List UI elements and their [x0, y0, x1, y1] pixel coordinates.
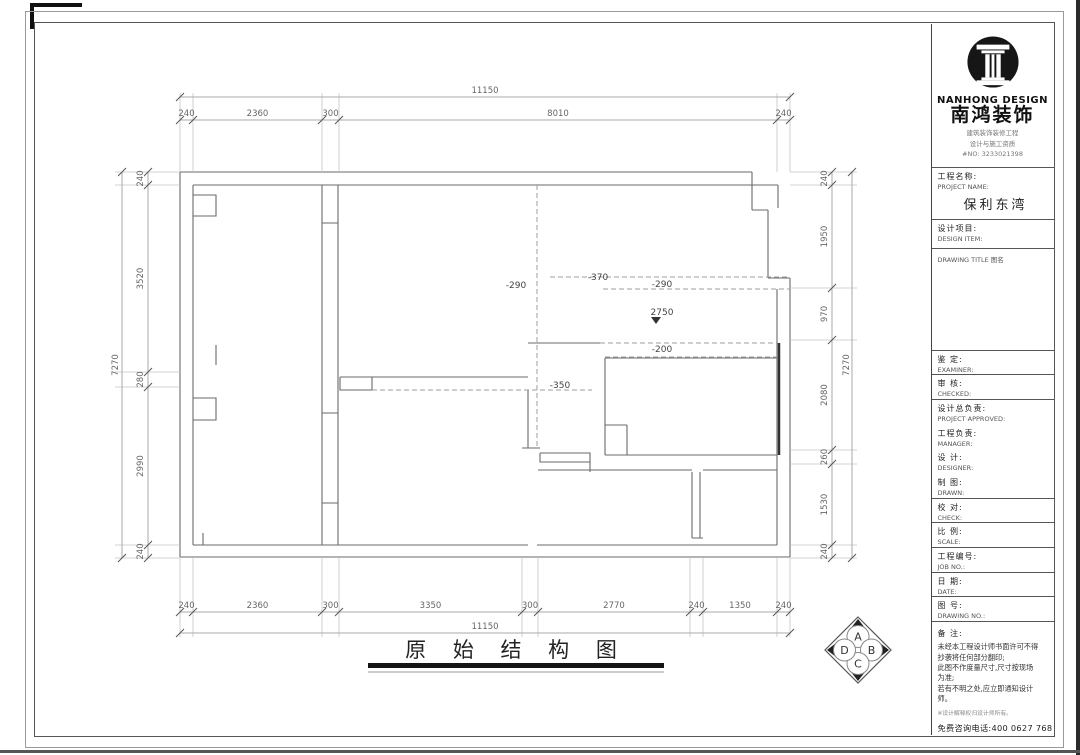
dim-label: 3350	[420, 601, 442, 611]
dim-label: 280	[136, 371, 146, 387]
dim-label: 1530	[820, 494, 830, 516]
dim-label: 7270	[842, 354, 852, 376]
remark-section: 备 注: 未经本工程设计师书面许可不得抄袭将任何部分翻印;此图不作度量尺寸,尺寸…	[932, 622, 1054, 736]
field-label-cn: 工程负责:	[938, 428, 1054, 439]
titleblock-field-job-no: 工程编号:JOB NO.:	[932, 548, 1054, 573]
dim-label: 2990	[136, 455, 146, 477]
dim-label: 1350	[729, 601, 751, 611]
plan-walls	[180, 172, 790, 557]
compass-letter-a: A	[854, 631, 862, 644]
titleblock-field-drawing-no: 图 号:DRAWING NO.:	[932, 597, 1054, 622]
field-label-cn: 设 计:	[938, 452, 1054, 463]
company-logo-section: NANHONG DESIGN 南鸿装饰 建筑装饰装修工程 设计与施工资质 #NO…	[932, 24, 1054, 168]
dim-label: 2360	[247, 601, 269, 611]
remark-line: 抄袭将任何部分翻印;	[938, 653, 1050, 663]
cert-line: 设计与施工资质	[932, 139, 1054, 149]
field-label-en: CHECKED:	[938, 390, 1054, 398]
design-item-section: 设计项目: DESIGN ITEM:	[932, 220, 1054, 249]
field-label-en: JOB NO.:	[938, 563, 1054, 571]
dim-label: 11150	[471, 86, 498, 96]
titleblock-field-project-approved: 设计总负责:PROJECT APPROVED:	[932, 400, 1054, 425]
dim-label: 240	[136, 170, 146, 186]
dim-label: 2770	[603, 601, 625, 611]
titleblock-field-manager: 工程负责:MANAGER:	[932, 425, 1054, 450]
brand-certification: 建筑装饰装修工程 设计与施工资质 #NO: 3233021398	[932, 128, 1054, 159]
field-label-cn: 比 例:	[938, 526, 1054, 537]
cert-number: #NO: 3233021398	[932, 149, 1054, 159]
titleblock-field-examiner: 鉴 定:EXAMINER:	[932, 351, 1054, 376]
cert-line: 建筑装饰装修工程	[932, 128, 1054, 138]
plan-dashed-lines	[372, 185, 790, 448]
field-label-en: CHECK:	[938, 514, 1054, 522]
dim-label: 260	[820, 449, 830, 465]
level-label: 2750	[651, 308, 674, 318]
brand-name-cn: 南鸿装饰	[932, 106, 1054, 126]
field-label-cn: 图 号:	[938, 600, 1054, 611]
dim-label: 300	[322, 601, 338, 611]
remark-line: 未经本工程设计师书面许可不得	[938, 642, 1050, 652]
dim-label: 970	[820, 306, 830, 322]
compass-symbol: A B C D	[825, 617, 891, 683]
project-label-cn: 工程名称:	[938, 171, 1054, 182]
drawing-title-section: DRAWING TITLE 图名	[932, 249, 1054, 351]
dim-label: 240	[178, 109, 194, 119]
field-label-en: MANAGER:	[938, 440, 1054, 448]
dim-label: 240	[775, 601, 791, 611]
compass-letter-c: C	[854, 658, 862, 671]
field-label-en: SCALE:	[938, 538, 1054, 546]
field-label-cn: 日 期:	[938, 576, 1054, 587]
dim-label: 240	[775, 109, 791, 119]
titleblock-field-drawn: 制 图:DRAWN:	[932, 474, 1054, 499]
field-label-en: DRAWING NO.:	[938, 612, 1054, 620]
project-label-en: PROJECT NAME:	[938, 183, 1054, 191]
remark-text: 未经本工程设计师书面许可不得抄袭将任何部分翻印;此图不作度量尺寸,尺寸按现场为准…	[938, 642, 1054, 705]
drawing-sheet: 2402360300801024011150240236030033503002…	[0, 0, 1080, 755]
level-label: -290	[506, 281, 527, 291]
remark-line: 为准;	[938, 673, 1050, 683]
level-label: -290	[652, 280, 673, 290]
project-name-value: 保利东湾	[938, 194, 1054, 213]
field-label-en: DRAWN:	[938, 489, 1054, 497]
field-label-cn: 制 图:	[938, 477, 1054, 488]
design-item-label-cn: 设计项目:	[938, 223, 1054, 234]
remark-line: 若有不明之处,应立即通知设计	[938, 684, 1050, 694]
field-label-cn: 鉴 定:	[938, 354, 1054, 365]
dim-label: 3520	[136, 268, 146, 290]
remark-line: 此图不作度量尺寸,尺寸按现场	[938, 663, 1050, 673]
remark-line: 师。	[938, 694, 1050, 704]
column-logo-icon	[966, 35, 1020, 89]
field-label-en: DESIGNER:	[938, 464, 1054, 472]
dim-label: 8010	[547, 109, 569, 119]
drawing-title-label: DRAWING TITLE 图名	[938, 254, 1054, 264]
level-label: -200	[652, 345, 673, 355]
dim-label: 300	[322, 109, 338, 119]
dim-label: 7270	[111, 354, 121, 376]
level-label: -350	[550, 381, 571, 391]
remark-label: 备 注:	[938, 628, 1054, 639]
titleblock-field-date: 日 期:DATE:	[932, 573, 1054, 598]
field-label-cn: 审 核:	[938, 378, 1054, 389]
field-label-cn: 校 对:	[938, 502, 1054, 513]
field-label-en: PROJECT APPROVED:	[938, 415, 1054, 423]
level-label: -370	[588, 273, 609, 283]
dim-label: 240	[820, 170, 830, 186]
hotline-phone: 免费咨询电话:400 0627 768	[938, 722, 1054, 734]
design-item-label-en: DESIGN ITEM:	[938, 235, 1054, 243]
dim-label: 2080	[820, 384, 830, 406]
dim-label: 240	[688, 601, 704, 611]
dim-label: 300	[522, 601, 538, 611]
dim-label: 2360	[247, 109, 269, 119]
project-name-section: 工程名称: PROJECT NAME: 保利东湾	[932, 168, 1054, 220]
dim-label: 240	[178, 601, 194, 611]
dim-label: 240	[136, 543, 146, 559]
elevation-marker-icon	[651, 317, 661, 324]
dim-label: 11150	[471, 622, 498, 632]
dim-label: 240	[820, 543, 830, 559]
field-label-cn: 工程编号:	[938, 551, 1054, 562]
drawing-title: 原 始 结 构 图	[368, 634, 664, 664]
dimension-layer: 2402360300801024011150240236030033503002…	[111, 86, 857, 637]
title-block-fields: 鉴 定:EXAMINER:审 核:CHECKED:设计总负责:PROJECT A…	[932, 351, 1054, 623]
titleblock-field-scale: 比 例:SCALE:	[932, 523, 1054, 548]
compass-letter-b: B	[868, 644, 876, 657]
titleblock-field-checked: 审 核:CHECKED:	[932, 375, 1054, 400]
titleblock-field-designer: 设 计:DESIGNER:	[932, 449, 1054, 474]
field-label-cn: 设计总负责:	[938, 403, 1054, 414]
titleblock-field-check: 校 对:CHECK:	[932, 499, 1054, 524]
dim-label: 1950	[820, 226, 830, 248]
title-block: NANHONG DESIGN 南鸿装饰 建筑装饰装修工程 设计与施工资质 #NO…	[931, 24, 1054, 735]
remark-footnote: ※设计解释权归设计师所有。	[938, 708, 1054, 717]
field-label-en: DATE:	[938, 588, 1054, 596]
field-label-en: EXAMINER:	[938, 366, 1054, 374]
compass-letter-d: D	[840, 644, 848, 657]
